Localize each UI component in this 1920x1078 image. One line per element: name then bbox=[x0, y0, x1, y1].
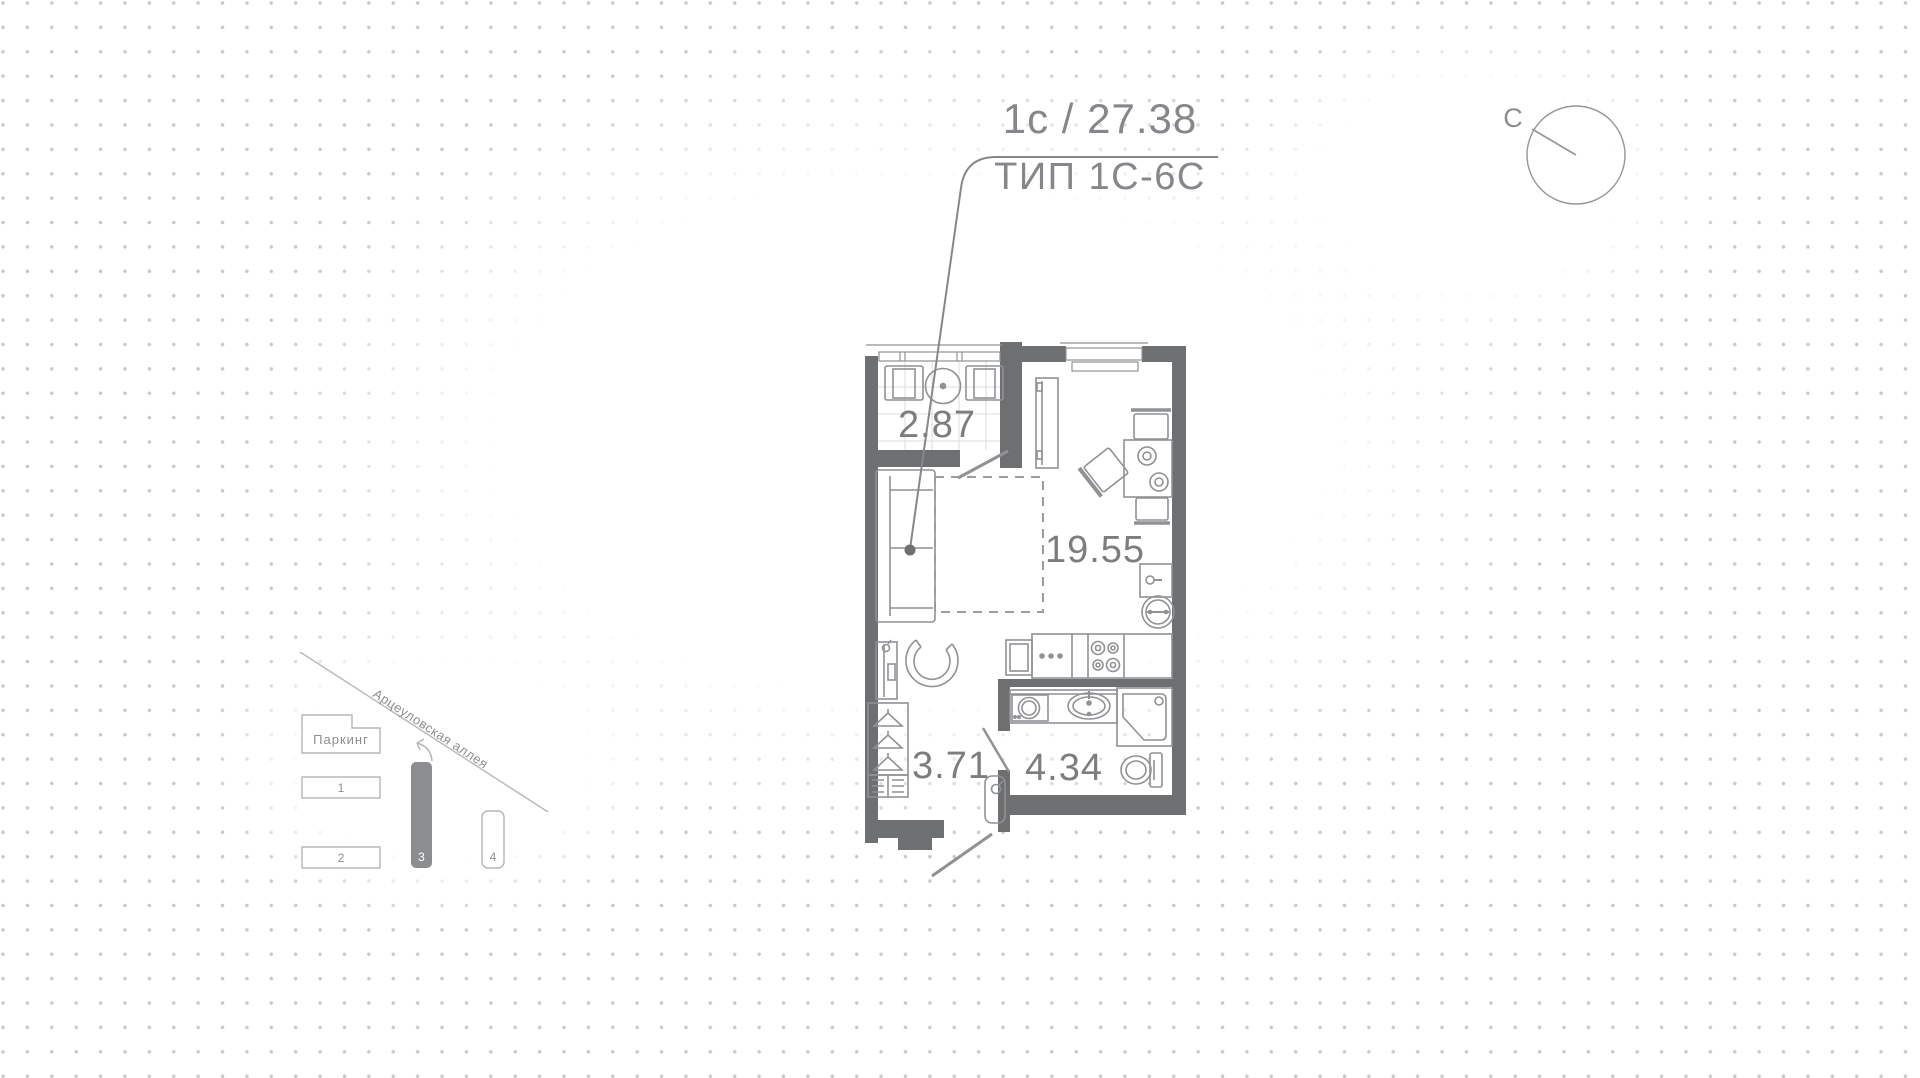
room-label-hallway: 3.71 bbox=[912, 745, 990, 787]
room-label-living: 19.55 bbox=[1045, 529, 1145, 571]
street-name: Арцеуловская аллея bbox=[370, 686, 491, 772]
kitchen-round-appliance bbox=[1142, 596, 1174, 628]
map-building-4-label: 4 bbox=[490, 850, 497, 864]
page-background: 1с / 27.38 ТИП 1С-6С bbox=[0, 0, 1920, 1078]
tub-chair bbox=[906, 640, 958, 687]
balcony-armchair-left bbox=[885, 366, 923, 400]
floor-plan: 2.87 19.55 3.71 4.34 bbox=[840, 80, 1240, 900]
toilet bbox=[1121, 753, 1162, 787]
balcony-armchair-right bbox=[966, 366, 1003, 400]
dining-chair-top bbox=[1131, 410, 1171, 439]
washing-machine bbox=[1012, 695, 1048, 721]
map-building-2-label: 2 bbox=[338, 851, 345, 865]
map-building-3-arrow bbox=[417, 739, 432, 761]
dining-chair-side bbox=[1079, 446, 1130, 497]
room-label-balcony: 2.87 bbox=[898, 404, 976, 446]
tall-cabinet bbox=[1036, 378, 1058, 468]
sofa bbox=[876, 470, 935, 622]
stove bbox=[1092, 642, 1120, 672]
balcony-window bbox=[866, 345, 1003, 361]
dining-table bbox=[1124, 440, 1172, 497]
kitchen-window bbox=[1060, 343, 1148, 371]
shower bbox=[1117, 688, 1172, 746]
dining-chair-bottom bbox=[1134, 498, 1170, 523]
compass-needle bbox=[1532, 129, 1576, 155]
dashed-zone bbox=[935, 477, 1043, 612]
room-label-bathroom: 4.34 bbox=[1025, 747, 1103, 789]
compass: С bbox=[1490, 90, 1650, 220]
map-parking-label: Паркинг bbox=[313, 732, 369, 747]
site-map: Арцеуловская аллея Паркинг 1 2 3 4 bbox=[280, 630, 570, 890]
map-building-3-label: 3 bbox=[418, 850, 425, 864]
map-building-1-label: 1 bbox=[338, 781, 345, 795]
kitchen-counter bbox=[1006, 634, 1172, 678]
bathroom-sink bbox=[1068, 691, 1110, 719]
leader-dot bbox=[905, 545, 916, 556]
compass-north-label: С bbox=[1503, 103, 1523, 133]
entrance-door-swing bbox=[932, 834, 992, 876]
hall-dresser bbox=[876, 640, 897, 699]
